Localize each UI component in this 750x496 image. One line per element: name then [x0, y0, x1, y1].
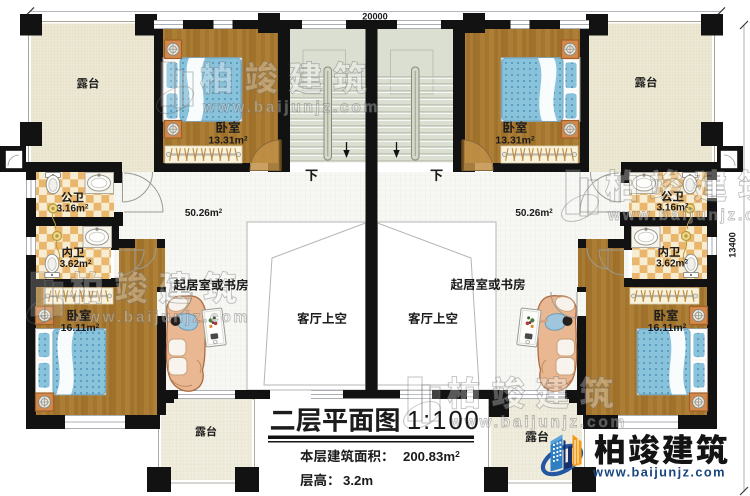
- svg-text:13.31m2: 13.31m2: [495, 135, 535, 147]
- svg-text:3.16m2: 3.16m2: [657, 203, 689, 214]
- svg-text:16.11m2: 16.11m2: [61, 322, 100, 334]
- svg-text:50.26m2: 50.26m2: [515, 208, 553, 219]
- svg-text:1:100: 1:100: [407, 407, 481, 435]
- svg-text:50.26m2: 50.26m2: [185, 208, 223, 219]
- svg-text:www.baijunjz.com: www.baijunjz.com: [592, 465, 726, 480]
- svg-text:www.baijunjz.com: www.baijunjz.com: [202, 99, 380, 116]
- svg-text:3.62m2: 3.62m2: [60, 259, 92, 270]
- svg-text:200.83m2: 200.83m2: [403, 449, 460, 464]
- svg-text:3.62m2: 3.62m2: [656, 259, 688, 270]
- svg-text:13400: 13400: [728, 232, 738, 258]
- svg-text:16.11m2: 16.11m2: [648, 322, 687, 334]
- svg-text:13.31m2: 13.31m2: [208, 135, 248, 147]
- svg-text:3.2m: 3.2m: [343, 473, 373, 488]
- svg-text:3.16m2: 3.16m2: [57, 204, 89, 215]
